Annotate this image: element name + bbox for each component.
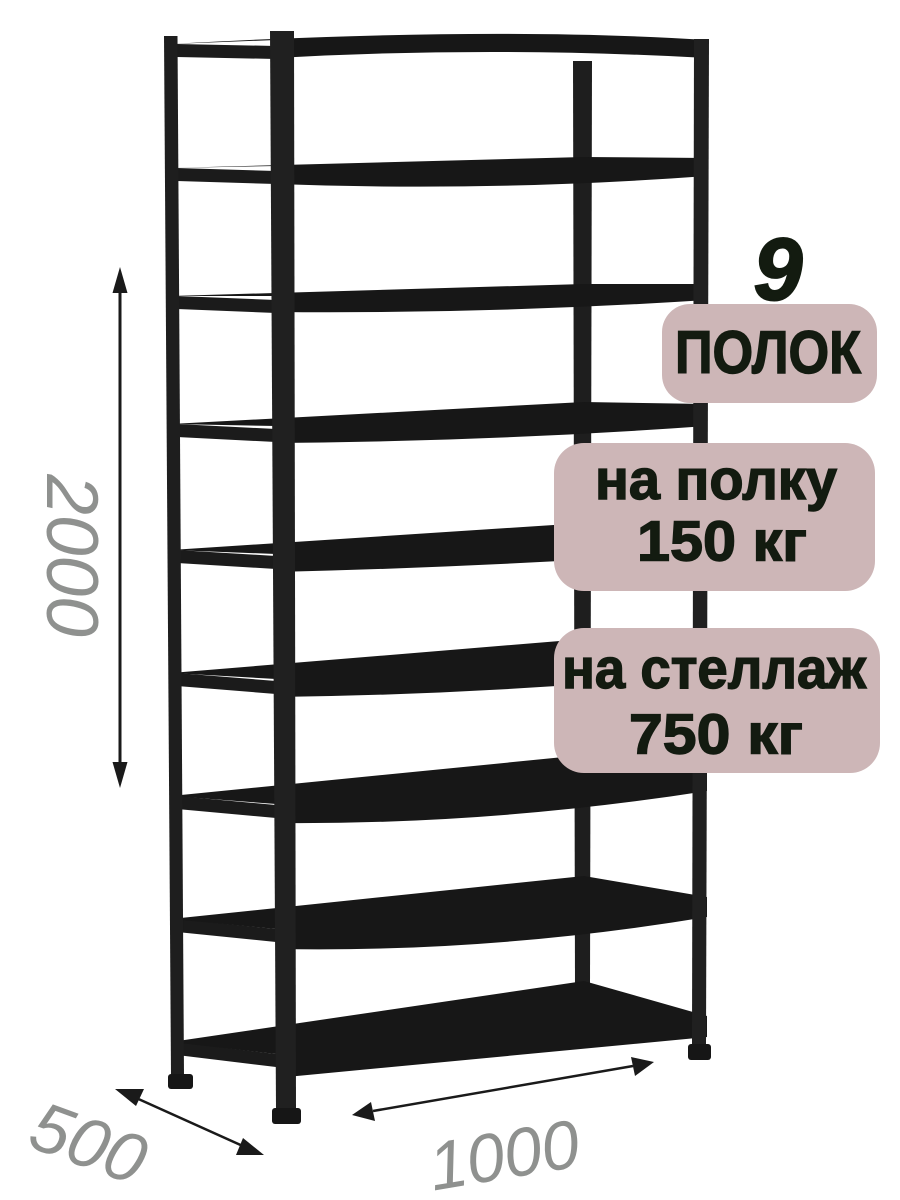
- svg-text:на полку: на полку: [595, 448, 837, 512]
- svg-text:9: 9: [754, 220, 803, 319]
- svg-text:2000: 2000: [31, 473, 112, 636]
- svg-text:750 кг: 750 кг: [629, 703, 803, 767]
- svg-text:ПОЛОК: ПОЛОК: [675, 319, 861, 386]
- svg-text:150 кг: 150 кг: [637, 510, 807, 574]
- svg-text:1000: 1000: [423, 1106, 585, 1200]
- svg-text:на стеллаж: на стеллаж: [562, 637, 867, 701]
